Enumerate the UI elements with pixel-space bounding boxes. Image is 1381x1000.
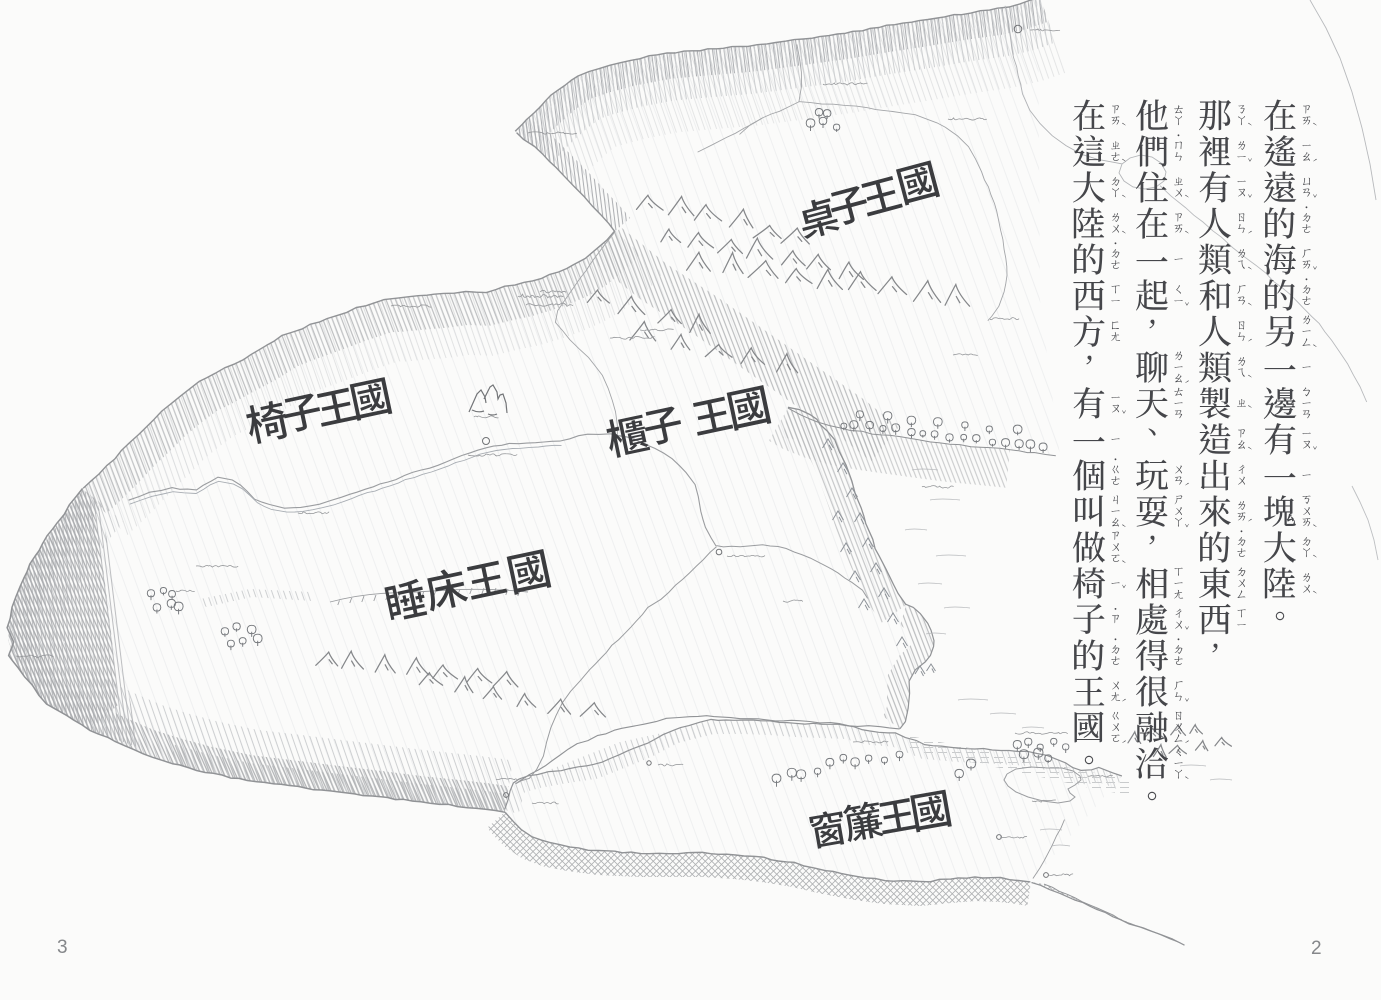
svg-text:3: 3	[57, 937, 68, 958]
svg-text:2: 2	[1311, 938, 1322, 959]
